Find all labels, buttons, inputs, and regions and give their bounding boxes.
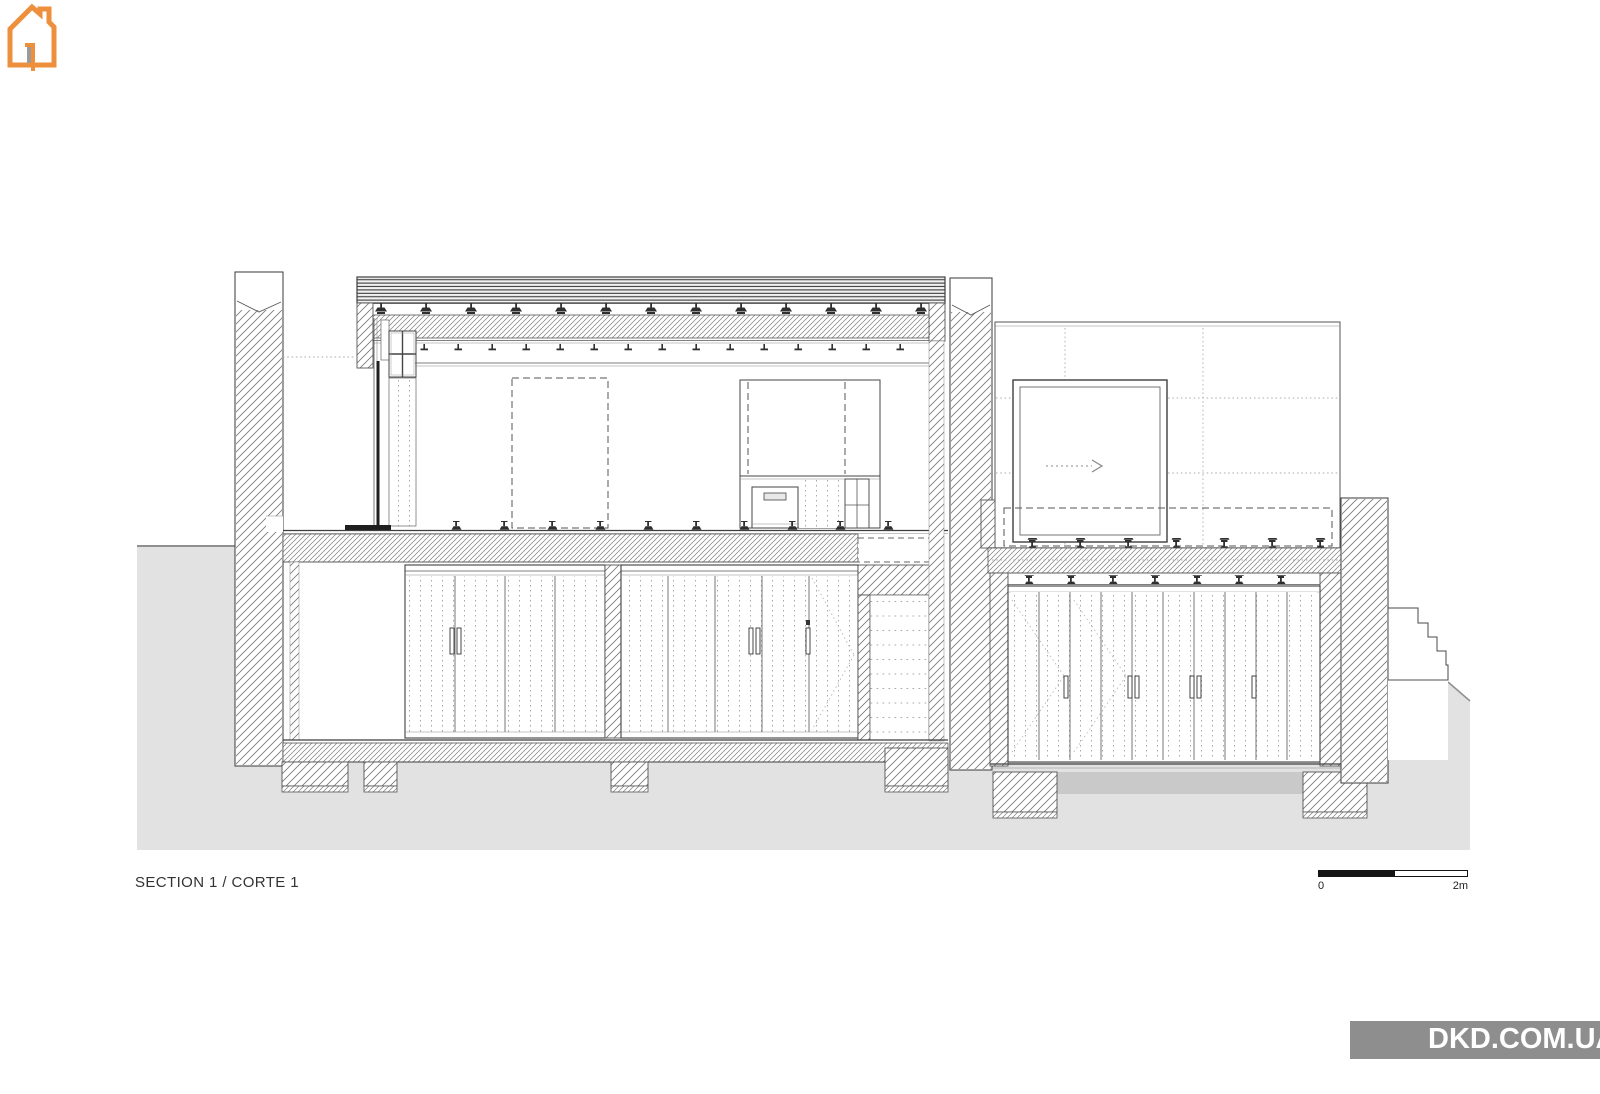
door-handle <box>1197 676 1201 698</box>
right-building <box>981 322 1448 818</box>
drawing-sheet: SECTION 1 / CORTE 1 0 2m DKD.COM.UA <box>0 0 1600 1094</box>
scale-zero-label: 0 <box>1318 880 1324 892</box>
floor-support-brackets <box>1000 538 1332 548</box>
floor-support-brackets <box>420 521 905 531</box>
garage <box>990 573 1367 818</box>
door-handle <box>1190 676 1194 698</box>
scale-end-label: 2m <box>1453 880 1468 892</box>
glazing-section-line <box>377 361 380 526</box>
house-icon <box>0 0 62 74</box>
window-assembly <box>367 318 416 530</box>
window-elevation <box>1013 380 1167 542</box>
door-handle <box>450 628 454 654</box>
retaining-wall <box>1341 498 1388 783</box>
stair-column <box>858 565 930 740</box>
garage-ceiling-brackets <box>1010 575 1318 584</box>
right-building-elevation <box>981 322 1340 548</box>
stair-opening-dashed <box>858 538 932 562</box>
door-handle <box>1135 676 1139 698</box>
left-parapet-wall <box>235 272 283 766</box>
drawing-title: SECTION 1 / CORTE 1 <box>135 874 299 891</box>
door-handle <box>756 628 760 654</box>
inner-wall-lining <box>929 341 944 741</box>
door-handle <box>1128 676 1132 698</box>
scale-bar-open-segment <box>1394 870 1468 877</box>
wardrobe-left <box>405 565 605 738</box>
floor-slab-right <box>988 538 1341 573</box>
door-handle <box>457 628 461 654</box>
garage-doors <box>1008 586 1320 762</box>
kitchen-block <box>740 380 880 528</box>
exterior-steps <box>1388 608 1448 760</box>
watermark-text: DKD.COM.UA <box>1428 1023 1600 1056</box>
left-building-section <box>235 270 992 792</box>
wardrobe-right <box>621 565 858 738</box>
scale-bar: 0 2m <box>1318 870 1468 894</box>
door-handle <box>1064 676 1068 698</box>
roof-support-brackets <box>373 303 928 314</box>
basement-divider-wall <box>605 565 621 738</box>
threshold <box>345 525 371 530</box>
section-drawing <box>0 0 1600 1094</box>
door-handle <box>806 628 810 654</box>
door-handle <box>1252 676 1256 698</box>
scale-bar-filled-segment <box>1318 870 1394 877</box>
ceiling-hanger-brackets <box>378 343 926 351</box>
door-handle <box>749 628 753 654</box>
